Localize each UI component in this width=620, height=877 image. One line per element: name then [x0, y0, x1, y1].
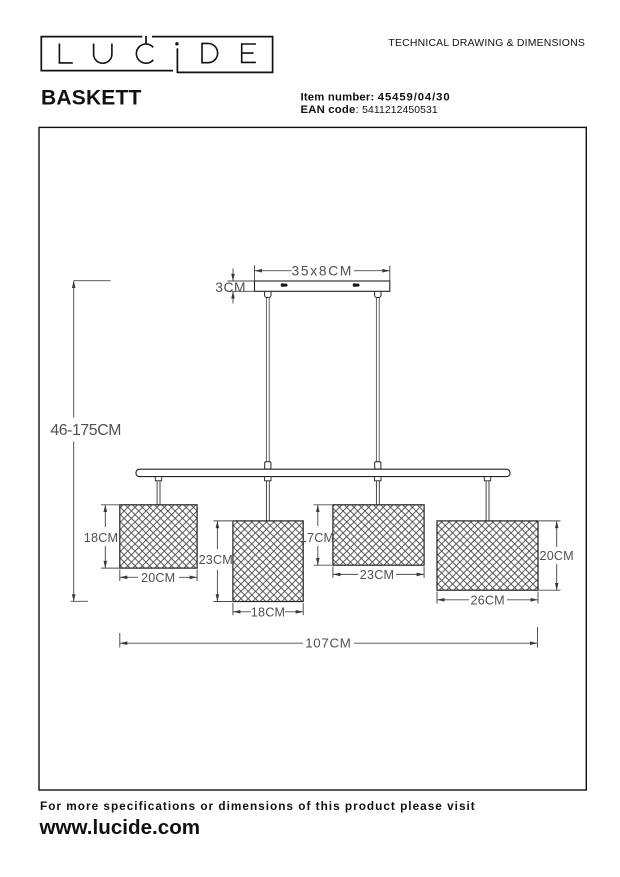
svg-text:EAN code: 5411212450531: EAN code: 5411212450531 — [301, 104, 438, 116]
svg-text:BASKETT: BASKETT — [41, 86, 142, 109]
svg-text:23CM: 23CM — [360, 568, 394, 582]
svg-text:17CM: 17CM — [300, 531, 334, 545]
svg-text:107CM: 107CM — [305, 636, 351, 651]
svg-text:35x8CM: 35x8CM — [292, 263, 354, 278]
svg-text:18CM: 18CM — [251, 605, 285, 619]
svg-text:www.lucide.com: www.lucide.com — [39, 816, 201, 839]
svg-text:26CM: 26CM — [470, 593, 504, 607]
svg-text:46-175CM: 46-175CM — [50, 422, 121, 439]
svg-text:For more specifications or dim: For more specifications or dimensions of… — [40, 799, 476, 813]
svg-text:18CM: 18CM — [84, 531, 118, 545]
svg-text:20CM: 20CM — [539, 549, 573, 563]
svg-text:TECHNICAL DRAWING & DIMENSIONS: TECHNICAL DRAWING & DIMENSIONS — [388, 38, 585, 49]
svg-text:23CM: 23CM — [199, 553, 233, 567]
svg-text:Item number: 45459/04/30: Item number: 45459/04/30 — [301, 91, 451, 103]
svg-text:3CM: 3CM — [215, 280, 246, 295]
svg-text:20CM: 20CM — [141, 571, 175, 585]
